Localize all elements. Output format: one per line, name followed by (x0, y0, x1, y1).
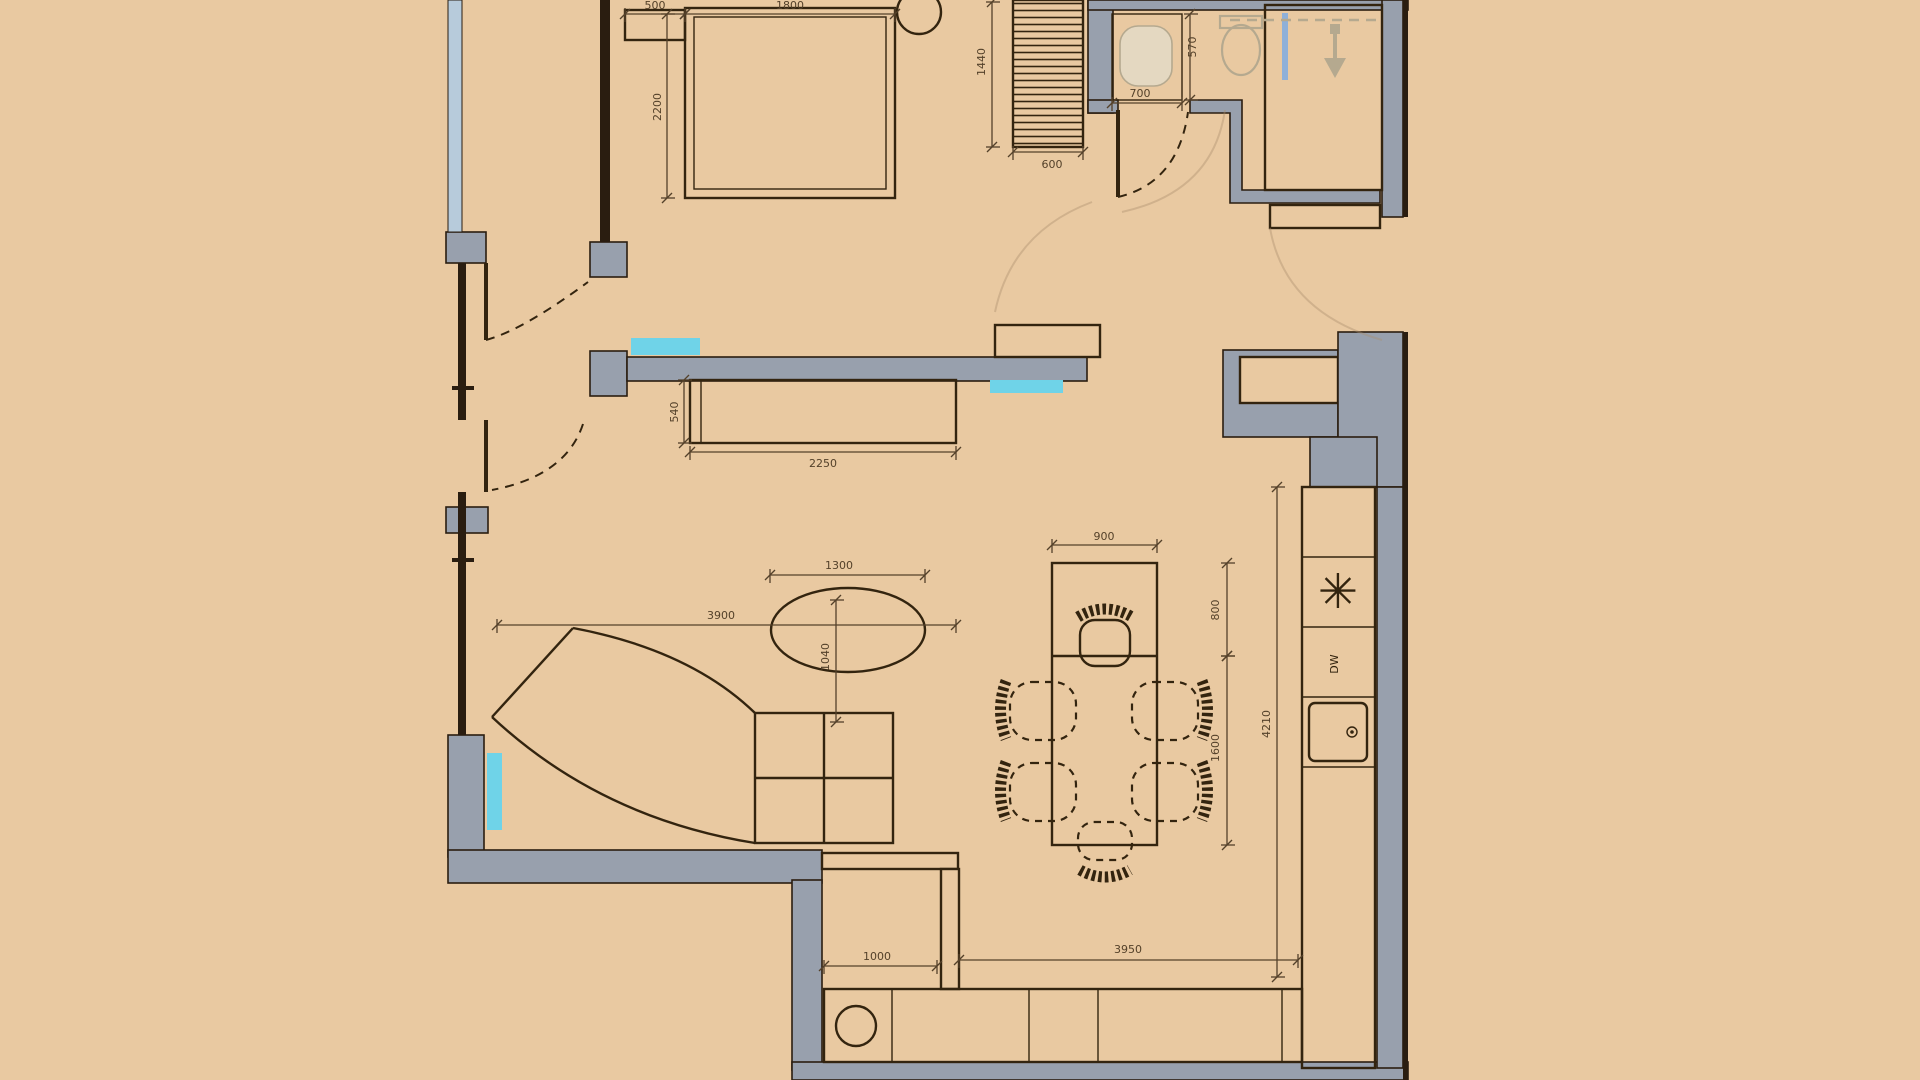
duct-niche (1240, 357, 1338, 403)
shower-drain-arrow-icon (1324, 58, 1346, 78)
door-swing-balcony-1 (486, 282, 588, 340)
chair-back (1001, 762, 1007, 820)
dimension-label: 2200 (651, 93, 664, 121)
dimension-label: 3950 (1114, 943, 1142, 956)
washing-machine (836, 1006, 876, 1046)
bed-mattress (694, 17, 886, 189)
wall-pier (446, 232, 486, 263)
door-swing-bathroom (1118, 112, 1188, 197)
chair-seat-dashed (1132, 682, 1198, 740)
window-joint-tick (452, 558, 474, 562)
toilet-bowl (1222, 25, 1260, 75)
chair-back (1080, 870, 1130, 877)
wall-middle (627, 357, 1087, 381)
kitchen-sink (1309, 703, 1367, 761)
dishwasher-label: DW (1328, 654, 1341, 673)
dimension-label: 570 (1186, 37, 1199, 58)
dimension-label: 1040 (819, 643, 832, 671)
dimension-label: 1300 (825, 559, 853, 572)
coffee-table (771, 588, 925, 672)
round-side-table (897, 0, 941, 34)
window-facade (448, 0, 462, 232)
dimension-label: 900 (1094, 530, 1115, 543)
wall-pier (446, 507, 488, 533)
chair-back (1202, 762, 1208, 820)
bathroom-sink-basin (1120, 26, 1172, 86)
dimension-label: 3900 (707, 609, 735, 622)
wall-bath-bottom (1190, 100, 1380, 203)
sofa-back-curve (573, 628, 755, 713)
wall-facade-segment (458, 492, 466, 735)
partition-laundry-top (822, 853, 958, 869)
door-swing-balcony-2 (492, 424, 583, 490)
dimension-label: 540 (668, 402, 681, 423)
wall-pier (590, 351, 627, 396)
chair-back (1001, 681, 1007, 739)
tv-cabinet (690, 380, 956, 443)
wall-kitchen-connector (1310, 437, 1377, 487)
dimension-label: 1800 (776, 0, 804, 12)
window-joint-tick (452, 386, 474, 390)
dimension-label: 700 (1130, 87, 1151, 100)
toilet-tank (1220, 16, 1262, 28)
sofa (492, 628, 893, 843)
walls (446, 0, 1408, 1080)
entry-door (1270, 205, 1380, 228)
dimension-label: 600 (1042, 158, 1063, 171)
wall-bedroom-balcony (600, 0, 610, 242)
door-swing-faint (995, 202, 1092, 312)
bedroom-furniture (625, 0, 1083, 198)
dimension-annotations: 5001800220014406007005705402250390013001… (492, 0, 1303, 982)
chair-seat-dashed (1010, 763, 1076, 821)
chair-back (1202, 681, 1208, 739)
kitchen-faucet-dot (1350, 730, 1354, 734)
chair-seat-dashed (1010, 682, 1076, 740)
wall-right-edge (1403, 332, 1408, 1080)
dimension-label: 1000 (863, 950, 891, 963)
chair-seat-dashed (1078, 822, 1132, 860)
floor-plan-canvas: ✳ DW 50018002200144060070057054022503900… (0, 0, 1920, 1080)
wall-right-upper (1382, 0, 1403, 217)
wall-facade-segment (458, 263, 466, 420)
sofa-front-curve (492, 717, 755, 843)
cooktop-icon: ✳ (1318, 564, 1358, 620)
chair-seat-dashed (1132, 763, 1198, 821)
radiator-living (487, 753, 502, 830)
door-swing-faint (1122, 110, 1225, 212)
wall-laundry-left (792, 880, 822, 1070)
wall-bed-bath (1088, 0, 1113, 113)
dimension-label: 4210 (1260, 710, 1273, 738)
radiator-hall (990, 380, 1063, 393)
shower-head (1330, 24, 1340, 34)
bottom-counter (824, 989, 1302, 1062)
shower-glass-panel (1282, 13, 1288, 80)
kitchen: ✳ DW (824, 487, 1375, 1068)
bathroom-fixtures (1112, 5, 1382, 190)
dimension-label: 800 (1209, 600, 1222, 621)
wall-living-bottom (448, 850, 822, 883)
chair-seat (1080, 620, 1130, 666)
hall-cabinet (995, 325, 1100, 357)
dimension-label: 2250 (809, 457, 837, 470)
wall-right-lower (1377, 487, 1403, 1068)
dimension-label: 500 (645, 0, 666, 12)
windows-and-radiators (448, 0, 1288, 830)
dining-set (1001, 563, 1208, 877)
dimension-label: 1600 (1209, 734, 1222, 762)
wall-right-edge (1403, 0, 1408, 217)
wardrobe-hatch (1013, 0, 1083, 147)
wall-pier (590, 242, 627, 277)
wall-bottom (792, 1062, 1408, 1080)
radiator-bedroom (631, 338, 700, 355)
sofa-back-left (492, 628, 573, 717)
dimension-label: 1440 (975, 48, 988, 76)
wall-facade-lower (448, 735, 484, 857)
entry-door-swing-faint (1270, 228, 1382, 340)
bed (685, 8, 895, 198)
partition-laundry (941, 869, 959, 989)
chair-back (1078, 609, 1132, 617)
